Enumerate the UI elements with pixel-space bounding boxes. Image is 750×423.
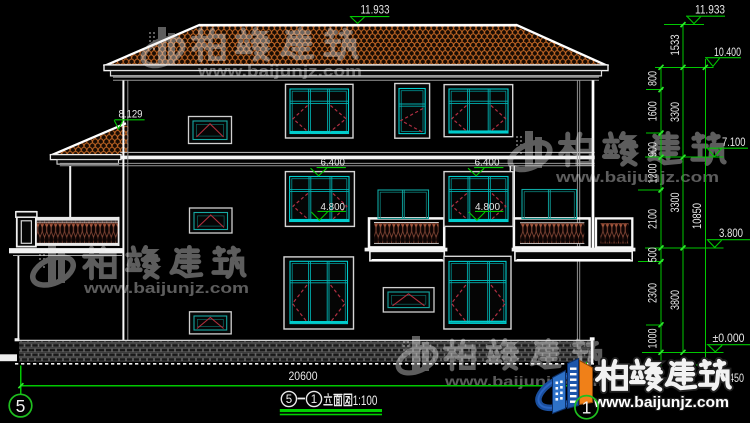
svg-text:5: 5 [16, 396, 26, 416]
svg-text:500: 500 [646, 247, 660, 262]
svg-text:3300: 3300 [668, 192, 682, 212]
svg-text:1600: 1600 [646, 101, 660, 121]
svg-text:2100: 2100 [646, 209, 660, 229]
svg-text:1200: 1200 [646, 163, 660, 183]
svg-text:3300: 3300 [668, 102, 682, 122]
svg-text:4.800: 4.800 [475, 201, 500, 213]
svg-text:www.baijunjz.com: www.baijunjz.com [555, 170, 719, 186]
svg-text:www.baijunjz.com: www.baijunjz.com [83, 281, 249, 297]
svg-text:4.800: 4.800 [321, 201, 346, 213]
svg-text:3800: 3800 [668, 290, 682, 310]
svg-text:10.400: 10.400 [714, 47, 741, 59]
svg-text:1:100: 1:100 [353, 393, 378, 408]
svg-text:11.933: 11.933 [361, 5, 390, 17]
svg-text:1: 1 [311, 394, 317, 406]
svg-text:±0.000: ±0.000 [713, 333, 745, 345]
svg-text:11.933: 11.933 [695, 5, 725, 17]
svg-text:1: 1 [582, 398, 592, 418]
svg-text:6.400: 6.400 [475, 157, 500, 169]
svg-text:8.129: 8.129 [119, 109, 143, 121]
svg-text:800: 800 [646, 71, 660, 86]
svg-text:20600: 20600 [289, 371, 318, 383]
svg-text:10850: 10850 [690, 203, 704, 229]
svg-text:900: 900 [646, 142, 660, 157]
svg-text:3.800: 3.800 [719, 228, 743, 240]
svg-text:6.400: 6.400 [321, 157, 346, 169]
svg-text:www.baijunjz.com: www.baijunjz.com [593, 394, 729, 411]
svg-text:7.100: 7.100 [722, 137, 746, 149]
svg-text:1533: 1533 [668, 34, 682, 55]
svg-text:5: 5 [286, 394, 292, 406]
svg-text:1000: 1000 [646, 328, 660, 348]
svg-text:2300: 2300 [646, 283, 660, 303]
svg-text:www.baijunjz.com: www.baijunjz.com [197, 64, 362, 80]
